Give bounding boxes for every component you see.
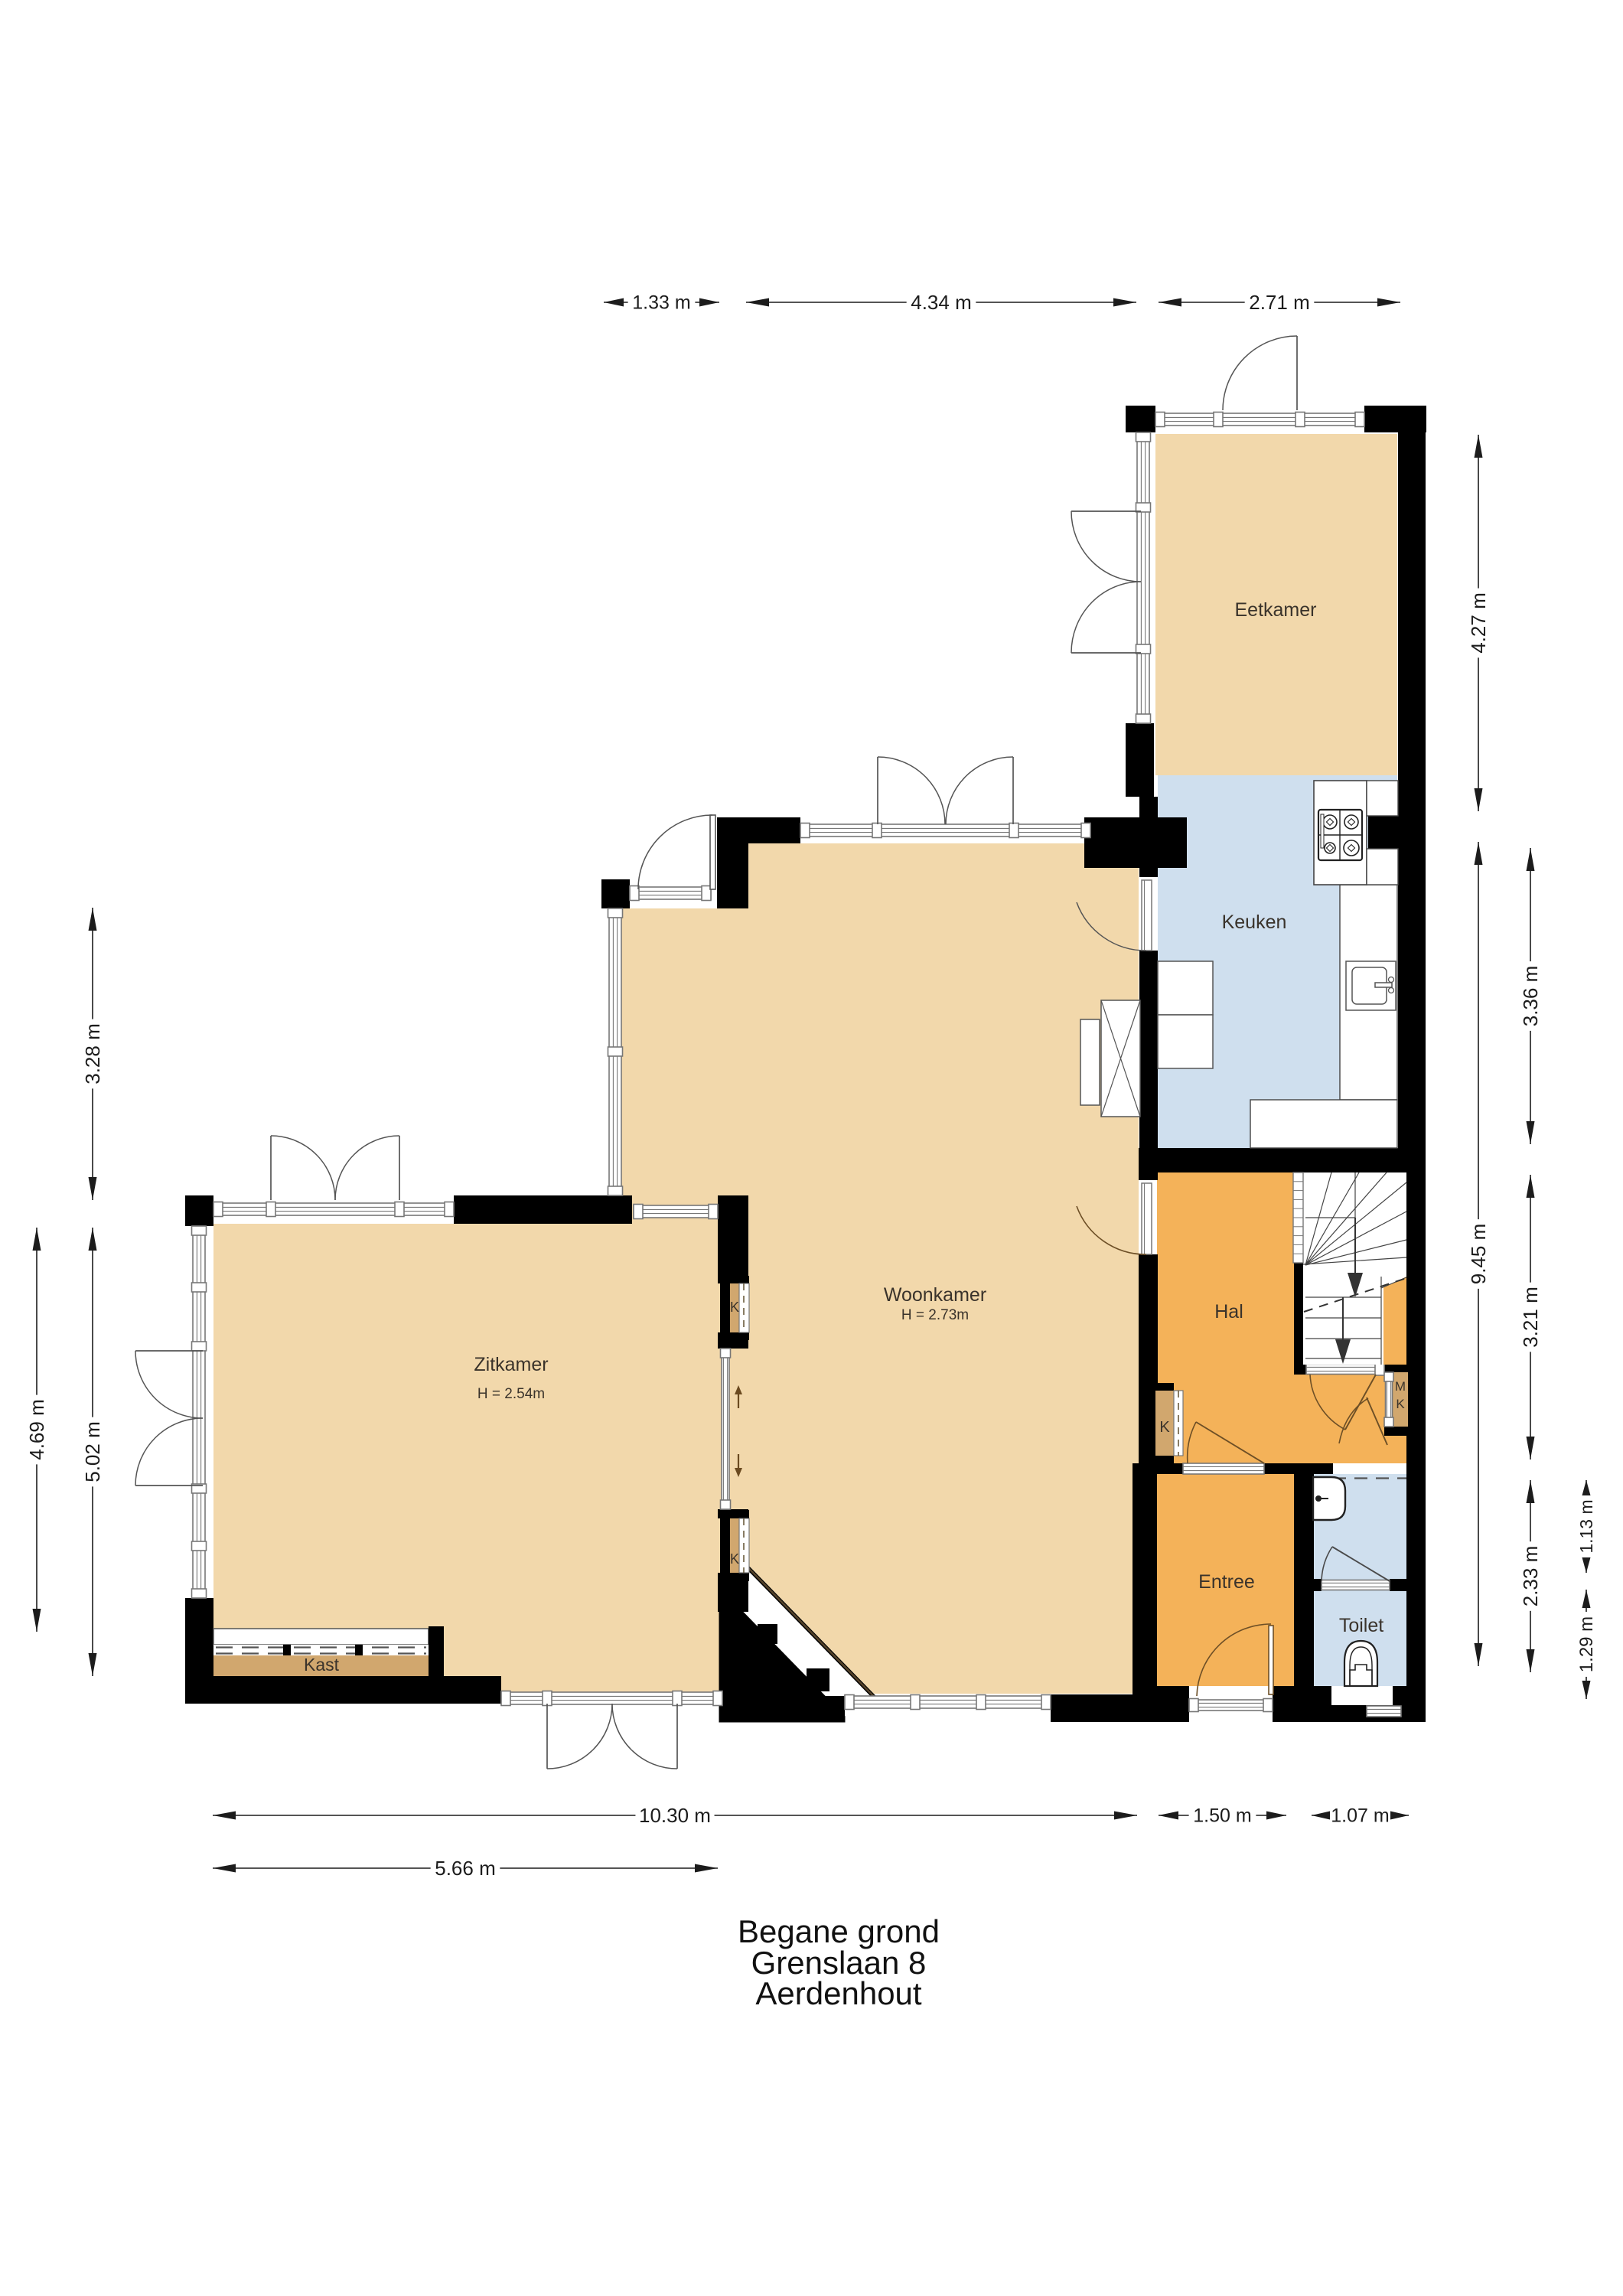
svg-text:9.45 m: 9.45 m bbox=[1467, 1224, 1490, 1285]
svg-text:1.33 m: 1.33 m bbox=[632, 292, 690, 314]
svg-text:K: K bbox=[730, 1300, 739, 1315]
svg-text:3.21 m: 3.21 m bbox=[1519, 1287, 1542, 1348]
svg-text:H = 2.73m: H = 2.73m bbox=[901, 1307, 969, 1323]
svg-text:Toilet: Toilet bbox=[1339, 1615, 1383, 1636]
svg-text:3.28 m: 3.28 m bbox=[81, 1023, 104, 1084]
svg-text:5.02 m: 5.02 m bbox=[81, 1421, 104, 1482]
svg-text:5.66 m: 5.66 m bbox=[435, 1857, 496, 1880]
svg-text:Zitkamer: Zitkamer bbox=[474, 1354, 548, 1375]
svg-text:1.29 m: 1.29 m bbox=[1576, 1616, 1597, 1672]
svg-text:Entree: Entree bbox=[1198, 1571, 1255, 1593]
svg-text:Woonkamer: Woonkamer bbox=[884, 1284, 986, 1306]
svg-text:2.33 m: 2.33 m bbox=[1519, 1546, 1542, 1607]
svg-text:1.50 m: 1.50 m bbox=[1193, 1805, 1251, 1827]
svg-text:K: K bbox=[1396, 1397, 1405, 1411]
svg-text:4.27 m: 4.27 m bbox=[1467, 592, 1490, 654]
svg-text:K: K bbox=[1159, 1419, 1170, 1436]
svg-text:4.34 m: 4.34 m bbox=[911, 291, 972, 314]
svg-text:Aerdenhout: Aerdenhout bbox=[755, 1975, 922, 2011]
svg-text:1.07 m: 1.07 m bbox=[1331, 1805, 1389, 1827]
svg-text:K: K bbox=[730, 1551, 739, 1567]
svg-text:M: M bbox=[1395, 1379, 1406, 1394]
svg-text:Begane grond: Begane grond bbox=[738, 1913, 940, 1949]
svg-text:H = 2.54m: H = 2.54m bbox=[477, 1386, 545, 1402]
svg-text:Kast: Kast bbox=[304, 1655, 340, 1675]
svg-text:Eetkamer: Eetkamer bbox=[1235, 599, 1317, 621]
svg-text:2.71 m: 2.71 m bbox=[1249, 291, 1310, 314]
svg-text:1.13 m: 1.13 m bbox=[1576, 1499, 1596, 1553]
svg-text:Keuken: Keuken bbox=[1222, 912, 1287, 933]
svg-text:Hal: Hal bbox=[1214, 1301, 1243, 1322]
svg-text:4.69 m: 4.69 m bbox=[25, 1399, 48, 1460]
svg-text:10.30 m: 10.30 m bbox=[639, 1804, 711, 1827]
svg-text:3.36 m: 3.36 m bbox=[1519, 966, 1542, 1027]
